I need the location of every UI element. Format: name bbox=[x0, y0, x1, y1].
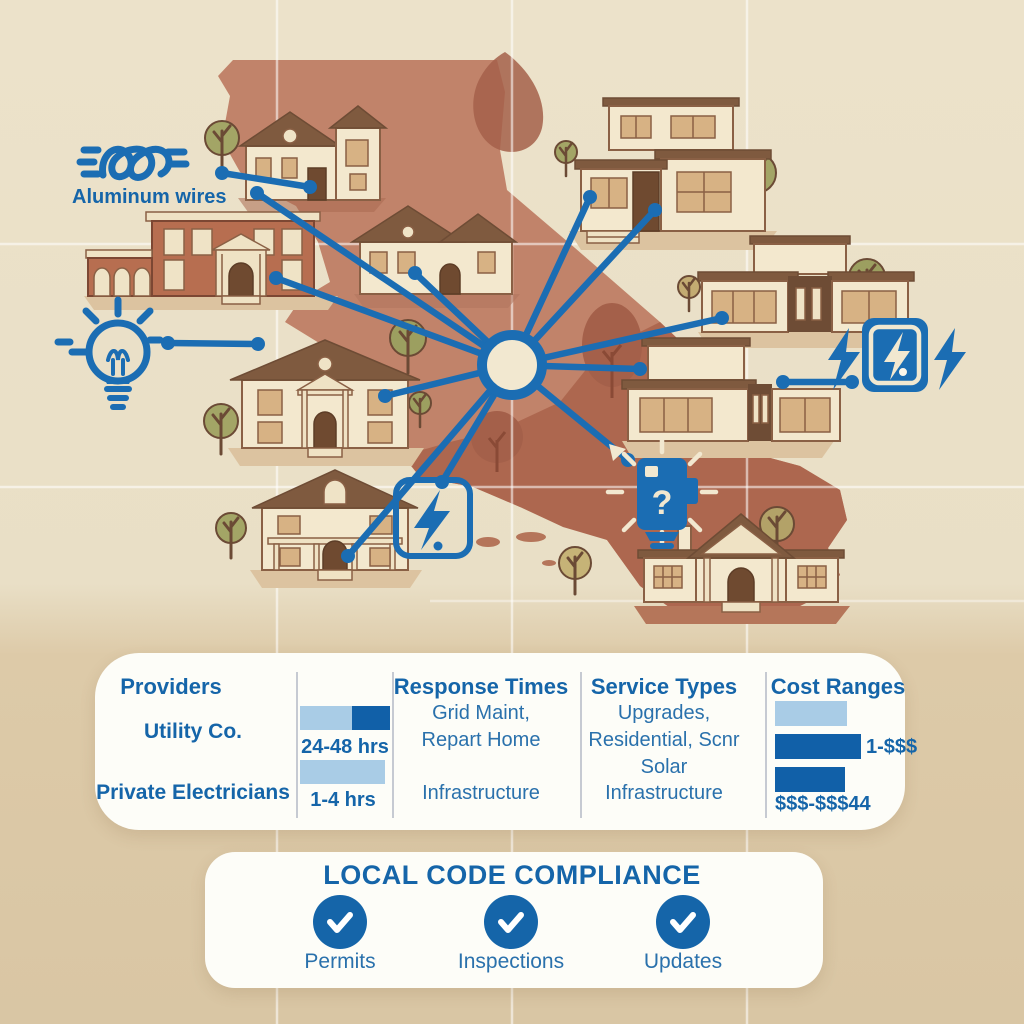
check-icon bbox=[666, 905, 700, 939]
label-updates: Updates bbox=[644, 950, 722, 974]
cost-bar-segment bbox=[775, 767, 845, 792]
cost-bar-segment bbox=[775, 734, 861, 759]
house-brick bbox=[84, 212, 338, 310]
island bbox=[542, 560, 556, 566]
provider-utility: Utility Co. bbox=[144, 720, 242, 744]
check-circle-updates bbox=[656, 895, 710, 949]
house-modern-flat bbox=[622, 338, 840, 458]
island bbox=[476, 537, 500, 547]
cost-label-utility: 1-$$$ bbox=[866, 736, 917, 759]
time-label-private: 1-4 hrs bbox=[310, 789, 376, 812]
column-divider bbox=[296, 672, 298, 818]
cost-bars bbox=[775, 701, 861, 792]
check-circle-permits bbox=[313, 895, 367, 949]
time-bar-segment bbox=[300, 760, 385, 784]
hub-node bbox=[482, 335, 542, 395]
time-label-utility: 24-48 hrs bbox=[301, 736, 389, 759]
time-bar-private bbox=[300, 760, 385, 784]
provider-private: Private Electricians bbox=[96, 781, 290, 805]
lightbulb-icon bbox=[58, 300, 160, 410]
header-service-types: Service Types bbox=[591, 674, 737, 700]
compliance-title: LOCAL CODE COMPLIANCE bbox=[323, 860, 701, 891]
check-icon bbox=[323, 905, 357, 939]
aluminum-wires-icon bbox=[80, 149, 186, 177]
response-cell-utility: Grid Maint, Repart Home bbox=[422, 700, 541, 754]
cost-label-private: $$$-$$$44 bbox=[775, 793, 871, 816]
service-cell-utility: Upgrades, Residential, Scnr Solar bbox=[588, 700, 739, 781]
meter-question-glyph: ? bbox=[652, 484, 673, 522]
service-cell-private: Infrastructure bbox=[605, 780, 723, 807]
header-providers: Providers bbox=[120, 674, 222, 700]
column-divider bbox=[580, 672, 582, 818]
header-response-times: Response Times bbox=[394, 674, 568, 700]
check-circle-inspections bbox=[484, 895, 538, 949]
check-icon bbox=[494, 905, 528, 939]
label-permits: Permits bbox=[304, 950, 375, 974]
response-cell-private: Infrastructure bbox=[422, 780, 540, 807]
time-bar-segment bbox=[300, 706, 352, 730]
aluminum-wires-label: Aluminum wires bbox=[72, 186, 226, 209]
header-cost-ranges: Cost Ranges bbox=[771, 674, 905, 700]
column-divider bbox=[765, 672, 767, 818]
time-bar-utility bbox=[300, 706, 390, 730]
cost-bar-segment bbox=[775, 701, 847, 726]
time-bar-segment bbox=[352, 706, 390, 730]
island bbox=[516, 532, 546, 542]
label-inspections: Inspections bbox=[458, 950, 564, 974]
